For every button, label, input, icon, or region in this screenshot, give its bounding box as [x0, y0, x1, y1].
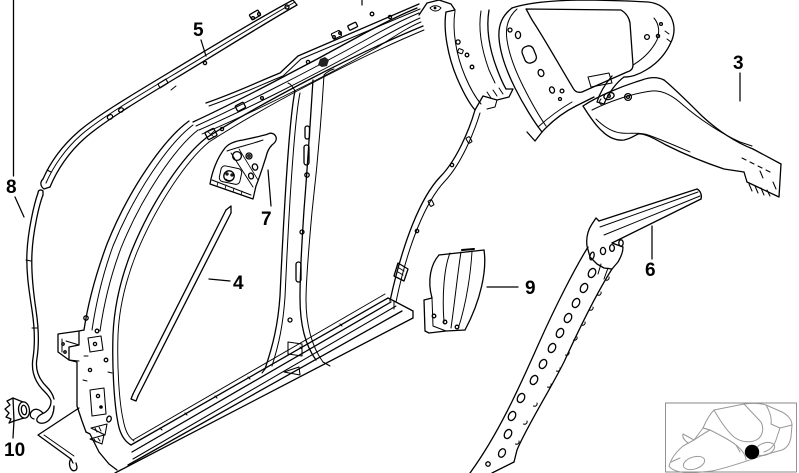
svg-text:3: 3	[733, 53, 744, 74]
svg-text:10: 10	[4, 440, 25, 461]
svg-text:7: 7	[261, 209, 272, 230]
svg-text:4: 4	[233, 273, 244, 294]
svg-text:8: 8	[6, 177, 17, 198]
svg-text:5: 5	[193, 20, 204, 41]
svg-text:9: 9	[525, 278, 536, 299]
svg-text:6: 6	[645, 260, 656, 281]
